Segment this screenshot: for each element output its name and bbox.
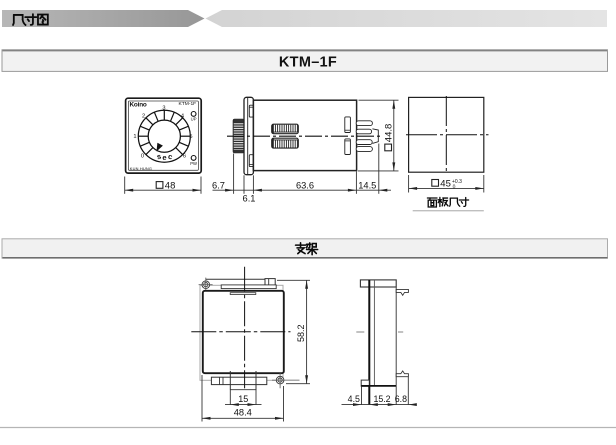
svg-text:KTM–1F: KTM–1F — [279, 55, 337, 71]
svg-text:44.8: 44.8 — [383, 124, 394, 142]
svg-text:6.7: 6.7 — [212, 180, 225, 190]
svg-text:48: 48 — [165, 181, 176, 192]
svg-text:1: 1 — [133, 134, 136, 140]
svg-text:15: 15 — [238, 394, 248, 404]
svg-text:KUN HUNG: KUN HUNG — [130, 166, 152, 171]
svg-text:e: e — [162, 153, 166, 162]
svg-text:6.8: 6.8 — [395, 394, 407, 404]
svg-text:PW: PW — [190, 161, 197, 166]
svg-text:6: 6 — [183, 154, 186, 160]
svg-text:KTM-1F: KTM-1F — [179, 101, 197, 107]
svg-text:UP: UP — [191, 117, 197, 122]
svg-text:15.2: 15.2 — [373, 394, 390, 404]
svg-text:4: 4 — [181, 113, 184, 119]
svg-text:Koino: Koino — [130, 101, 147, 108]
svg-text:63.6: 63.6 — [296, 180, 314, 190]
svg-text:2: 2 — [142, 113, 145, 119]
svg-text:0: 0 — [453, 185, 456, 191]
svg-text:48.4: 48.4 — [234, 407, 252, 417]
svg-text:3: 3 — [162, 106, 165, 112]
svg-text:58.2: 58.2 — [296, 324, 306, 342]
svg-text:4.5: 4.5 — [348, 394, 360, 404]
svg-text:45: 45 — [440, 178, 451, 189]
svg-text:5: 5 — [189, 134, 192, 140]
svg-text:6.1: 6.1 — [243, 194, 256, 204]
svg-text:0: 0 — [141, 154, 144, 160]
svg-text:14.5: 14.5 — [358, 181, 376, 191]
